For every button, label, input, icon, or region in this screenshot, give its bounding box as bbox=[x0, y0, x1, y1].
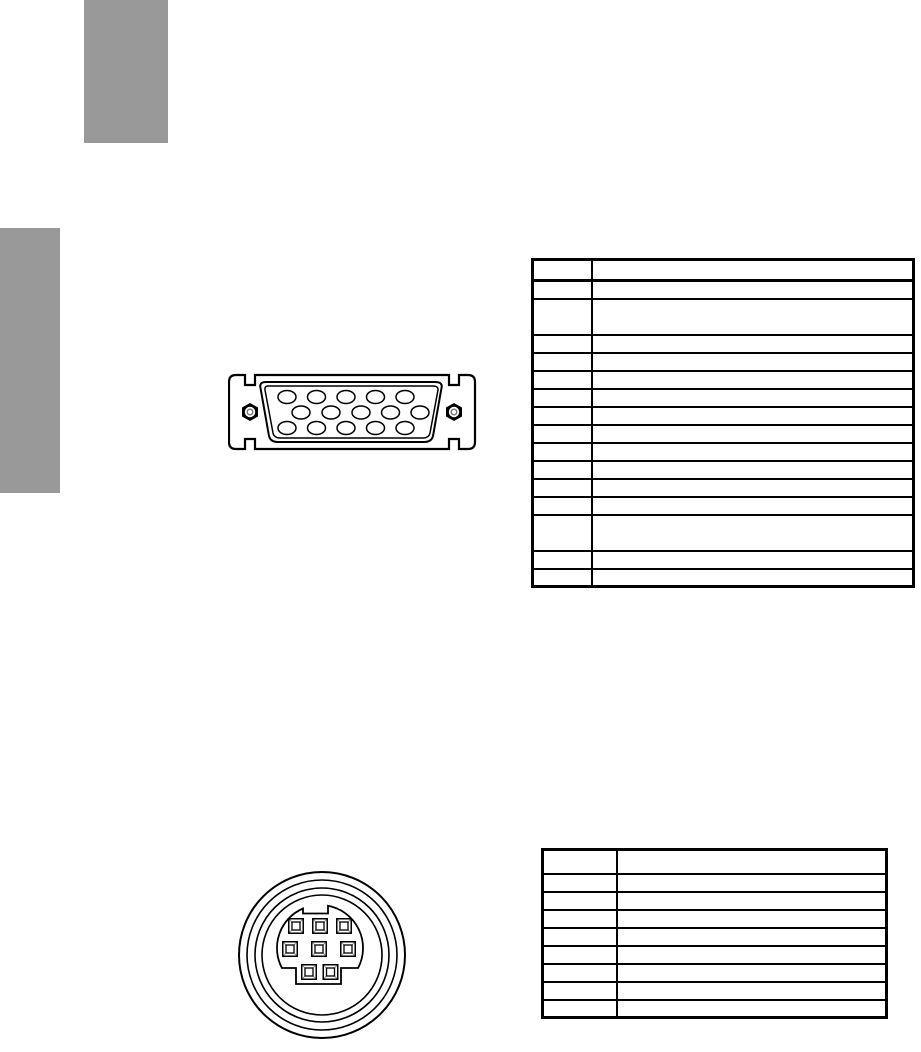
table-row bbox=[543, 946, 887, 964]
signal-cell bbox=[592, 260, 914, 281]
table-row bbox=[533, 515, 914, 551]
table-row bbox=[533, 569, 914, 587]
table-row bbox=[533, 389, 914, 407]
signal-cell bbox=[617, 1000, 887, 1018]
signal-cell bbox=[592, 569, 914, 587]
pin-number-cell bbox=[543, 892, 617, 910]
table-row bbox=[533, 443, 914, 461]
signal-cell bbox=[592, 353, 914, 371]
signal-cell bbox=[592, 497, 914, 515]
table-row bbox=[533, 425, 914, 443]
pin-number-cell bbox=[533, 260, 592, 281]
signal-cell bbox=[592, 299, 914, 335]
signal-cell bbox=[592, 461, 914, 479]
pin-number-cell bbox=[533, 461, 592, 479]
pin-number-cell bbox=[543, 850, 617, 874]
pin-number-cell bbox=[533, 515, 592, 551]
signal-cell bbox=[617, 892, 887, 910]
pin-number-cell bbox=[533, 353, 592, 371]
pin-number-cell bbox=[533, 497, 592, 515]
signal-cell bbox=[617, 928, 887, 946]
pin-number-cell bbox=[533, 551, 592, 569]
signal-cell bbox=[592, 281, 914, 299]
table-row bbox=[533, 551, 914, 569]
table-row bbox=[543, 982, 887, 1000]
pin-number-cell bbox=[533, 371, 592, 389]
table-row bbox=[543, 874, 887, 892]
table-row bbox=[533, 479, 914, 497]
pin-number-cell bbox=[543, 964, 617, 982]
minidin-connector-diagram bbox=[236, 869, 408, 1041]
signal-cell bbox=[592, 479, 914, 497]
table-row bbox=[533, 371, 914, 389]
dsub-pin-table bbox=[531, 258, 915, 588]
pin-number-cell bbox=[533, 281, 592, 299]
signal-cell bbox=[617, 946, 887, 964]
minidin-pin-table bbox=[541, 848, 888, 1019]
table-row bbox=[533, 407, 914, 425]
pin-number-cell bbox=[533, 389, 592, 407]
pin-number-cell bbox=[533, 425, 592, 443]
signal-cell bbox=[617, 874, 887, 892]
signal-cell bbox=[617, 850, 887, 874]
table-row bbox=[543, 928, 887, 946]
table-row bbox=[533, 299, 914, 335]
signal-cell bbox=[617, 910, 887, 928]
signal-cell bbox=[592, 443, 914, 461]
signal-cell bbox=[617, 982, 887, 1000]
pin-number-cell bbox=[543, 1000, 617, 1018]
signal-cell bbox=[617, 964, 887, 982]
table-row bbox=[543, 910, 887, 928]
signal-cell bbox=[592, 389, 914, 407]
table-row bbox=[533, 497, 914, 515]
table-row bbox=[543, 892, 887, 910]
pin-number-cell bbox=[543, 874, 617, 892]
signal-cell bbox=[592, 551, 914, 569]
pin-number-cell bbox=[543, 928, 617, 946]
table-row bbox=[533, 335, 914, 353]
pin-number-cell bbox=[533, 479, 592, 497]
table-row bbox=[543, 1000, 887, 1018]
table-row bbox=[533, 353, 914, 371]
manual-page bbox=[0, 0, 921, 1052]
table-row bbox=[533, 461, 914, 479]
table-header-row bbox=[543, 850, 887, 874]
pin-number-cell bbox=[533, 407, 592, 425]
signal-cell bbox=[592, 335, 914, 353]
table-row bbox=[533, 281, 914, 299]
signal-cell bbox=[592, 371, 914, 389]
vga-connector-diagram bbox=[228, 372, 478, 452]
table-header-row bbox=[533, 260, 914, 281]
table-row bbox=[543, 964, 887, 982]
pin-number-cell bbox=[533, 299, 592, 335]
signal-cell bbox=[592, 425, 914, 443]
side-tab-gray-block bbox=[0, 228, 60, 493]
signal-cell bbox=[592, 515, 914, 551]
pin-number-cell bbox=[533, 443, 592, 461]
header-gray-block bbox=[84, 0, 168, 143]
pin-number-cell bbox=[533, 569, 592, 587]
pin-number-cell bbox=[533, 335, 592, 353]
pin-number-cell bbox=[543, 946, 617, 964]
pin-number-cell bbox=[543, 982, 617, 1000]
pin-number-cell bbox=[543, 910, 617, 928]
signal-cell bbox=[592, 407, 914, 425]
